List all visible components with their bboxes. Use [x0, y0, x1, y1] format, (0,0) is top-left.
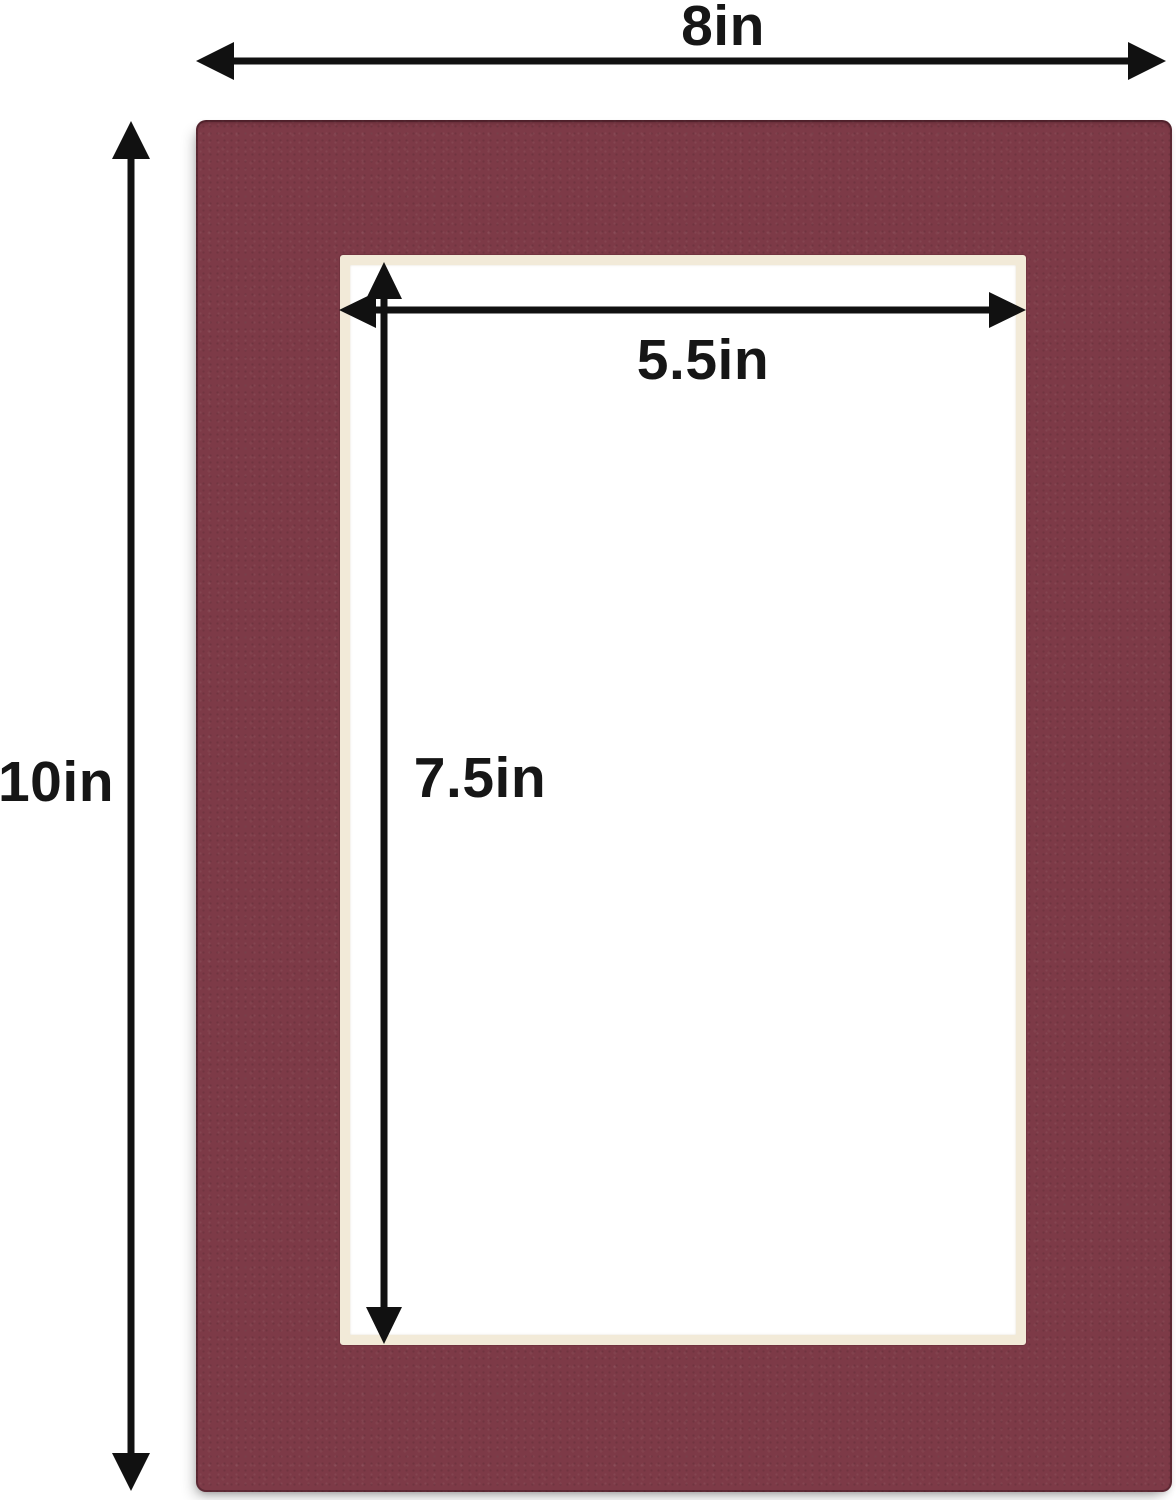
opening-width-label: 5.5in — [578, 332, 828, 389]
opening-height-label: 7.5in — [355, 750, 605, 807]
outer-width-label: 8in — [598, 0, 848, 55]
mat-board — [196, 120, 1172, 1492]
product-dimension-diagram: 8in 10in 5.5in 7.5in — [0, 0, 1176, 1500]
outer-height-label: 10in — [0, 754, 124, 811]
